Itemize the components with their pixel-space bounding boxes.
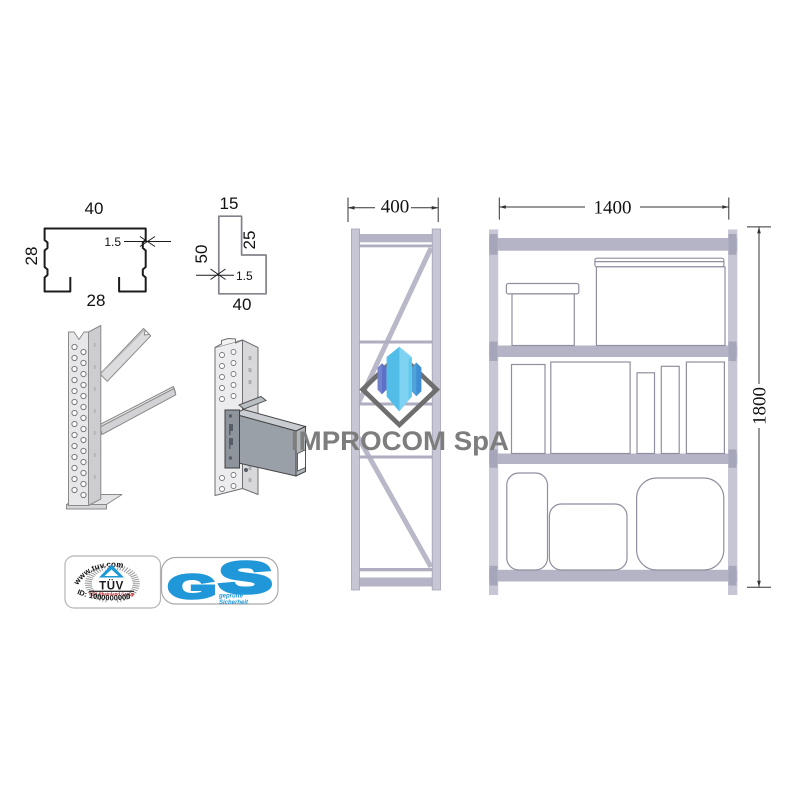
svg-text:40: 40 [85,199,104,218]
svg-text:25: 25 [240,231,259,250]
svg-text:28: 28 [87,291,106,310]
svg-text:28: 28 [22,247,41,266]
svg-text:40: 40 [233,295,252,314]
svg-text:Sicherheit: Sicherheit [219,600,249,606]
svg-text:IMPROCOM SpA: IMPROCOM SpA [291,426,509,456]
svg-text:400: 400 [381,197,410,218]
svg-text:15: 15 [220,194,239,213]
svg-text:TÜV: TÜV [99,580,124,593]
svg-text:1800: 1800 [750,387,771,425]
svg-text:geprüfte: geprüfte [218,594,244,600]
svg-text:50: 50 [192,245,211,264]
svg-text:G: G [168,568,216,605]
svg-text:1.5: 1.5 [104,235,121,249]
svg-text:1400: 1400 [594,198,632,219]
svg-text:1.5: 1.5 [236,269,253,283]
